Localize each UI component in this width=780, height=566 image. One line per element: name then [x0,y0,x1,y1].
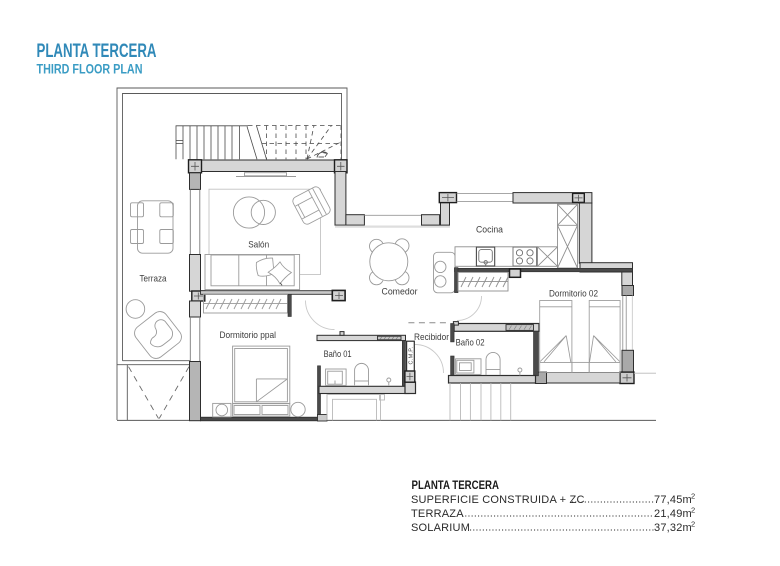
svg-text:Cocina: Cocina [476,225,504,236]
svg-text:77,45m: 77,45m [654,494,692,506]
svg-text:C.M.P.: C.M.P. [409,346,415,364]
svg-text:Baño 02: Baño 02 [456,338,485,349]
svg-text:TERRAZA: TERRAZA [411,508,464,520]
svg-text:2: 2 [691,520,695,529]
svg-text:Recibidor: Recibidor [414,332,449,343]
svg-text:Terraza: Terraza [140,274,168,285]
svg-text:SOLARIUM: SOLARIUM [411,522,470,534]
svg-text:Baño 01: Baño 01 [324,349,352,360]
svg-text:PLANTA TERCERA: PLANTA TERCERA [412,480,500,492]
svg-text:2: 2 [691,506,695,515]
svg-text:SUPERFICIE CONSTRUIDA + ZC: SUPERFICIE CONSTRUIDA + ZC [411,494,585,506]
svg-text:2: 2 [691,492,695,501]
svg-text:Dormitorio ppal: Dormitorio ppal [220,330,277,341]
svg-text:Salón: Salón [248,240,269,251]
svg-text:Dormitorio 02: Dormitorio 02 [549,289,598,300]
svg-text:THIRD FLOOR PLAN: THIRD FLOOR PLAN [37,62,143,77]
svg-text:Comedor: Comedor [382,287,418,298]
svg-text:PLANTA TERCERA: PLANTA TERCERA [37,41,157,62]
svg-text:21,49m: 21,49m [654,508,692,520]
svg-text:37,32m: 37,32m [654,522,692,534]
